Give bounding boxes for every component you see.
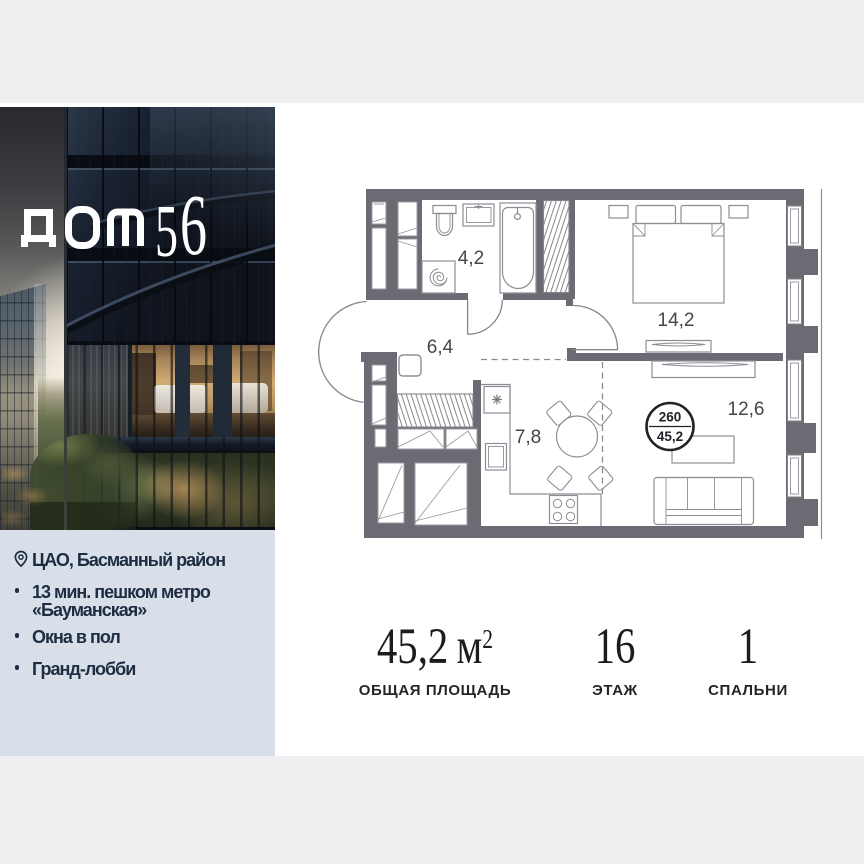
svg-text:260: 260 [659, 410, 682, 425]
svg-text:12,6: 12,6 [728, 399, 765, 420]
svg-text:4,2: 4,2 [458, 248, 484, 269]
svg-text:5: 5 [155, 191, 178, 273]
svg-text:45,2: 45,2 [657, 429, 683, 444]
svg-text:6: 6 [180, 176, 207, 273]
svg-text:7,8: 7,8 [515, 427, 541, 448]
svg-text:6,4: 6,4 [427, 337, 454, 358]
svg-text:14,2: 14,2 [658, 310, 695, 331]
